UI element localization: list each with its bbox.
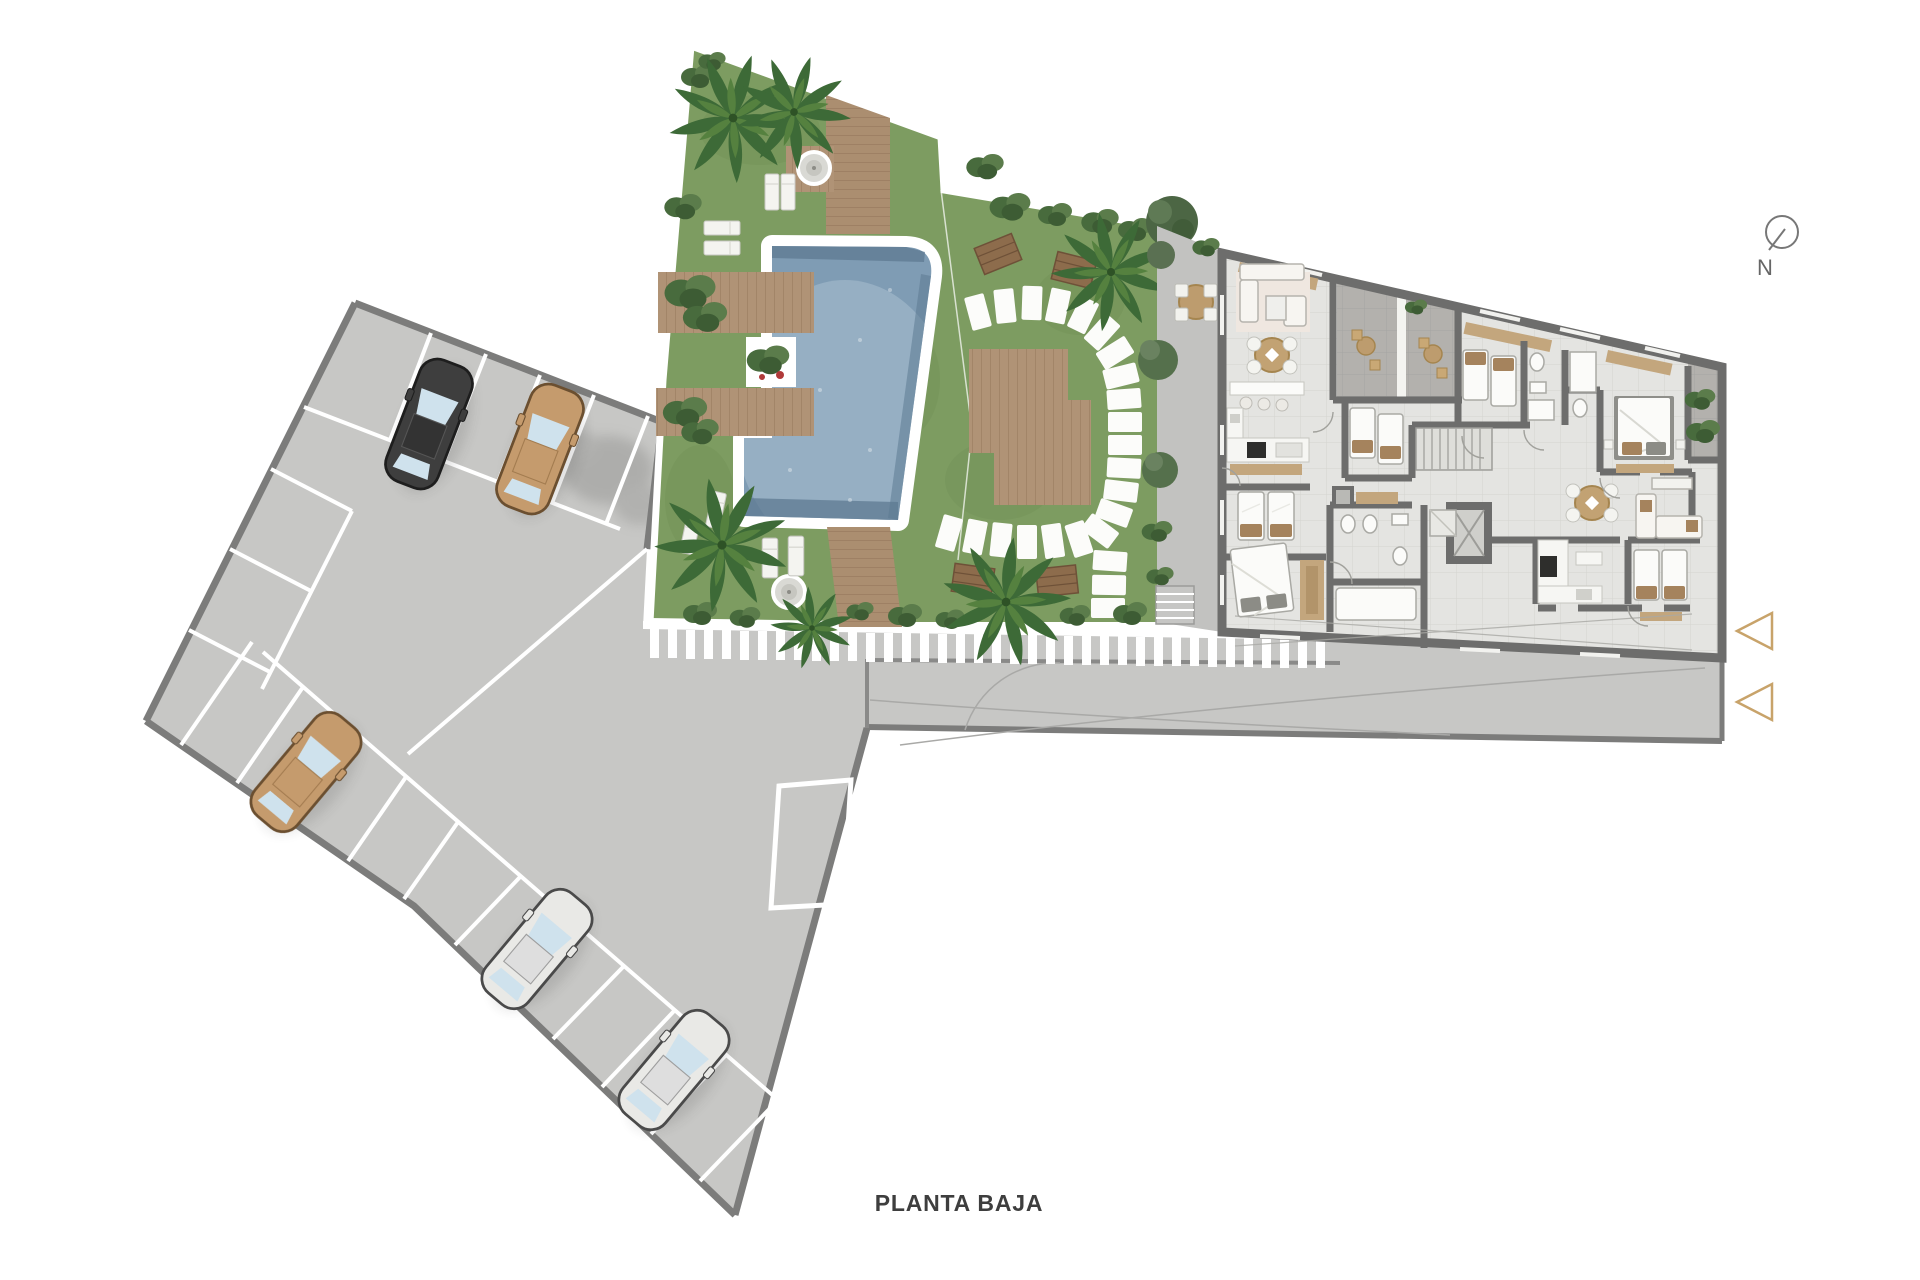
svg-text:PLANTA BAJA: PLANTA BAJA	[875, 1190, 1044, 1216]
svg-text:N: N	[1757, 255, 1773, 280]
